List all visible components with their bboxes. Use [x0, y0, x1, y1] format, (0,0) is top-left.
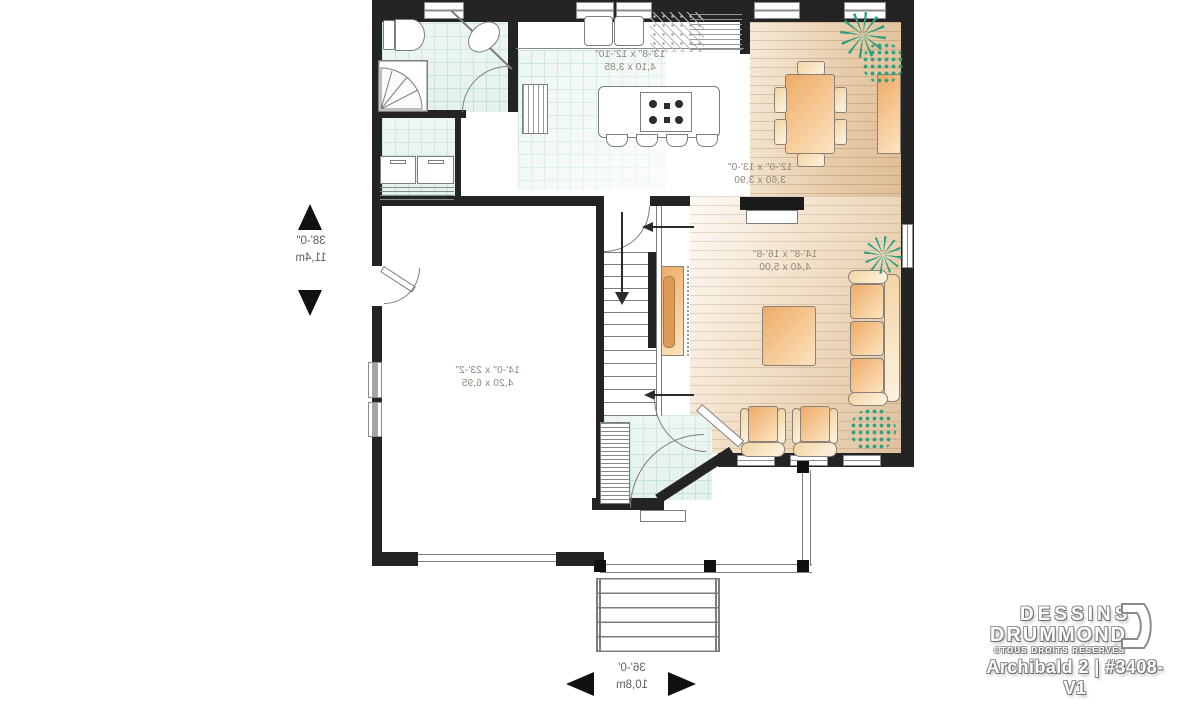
width-metric: 10,8m — [600, 677, 664, 694]
porch-post — [797, 560, 809, 572]
sofa-cushion — [850, 321, 884, 356]
width-dimension-label: 36'-0' 10,8m — [600, 660, 664, 693]
garage-size-imperial: 14'-0" x 23'-2" — [430, 364, 545, 377]
dimension-arrow-left-icon — [566, 672, 594, 696]
dryer — [417, 156, 454, 184]
plant-icon — [850, 408, 896, 452]
dining-chair — [797, 61, 825, 75]
dining-size-label: 12'-0" x 13'-0" 3,60 x 3,90 — [700, 161, 820, 187]
coffee-table — [762, 306, 816, 366]
stair-direction-line — [621, 212, 623, 294]
toilet-bowl — [395, 19, 425, 51]
porch-post — [594, 560, 606, 572]
armchair-back — [793, 442, 837, 457]
dining-chair — [774, 87, 787, 113]
sofa — [848, 270, 902, 406]
garage-door — [418, 554, 556, 562]
sofa-back — [884, 274, 900, 402]
sofa-cushion — [850, 284, 884, 319]
armchair-back — [741, 442, 785, 457]
dining-chair — [834, 87, 847, 113]
brand-rights: ©TOUS DROITS RÉSERVÉS — [994, 646, 1125, 655]
entry-closet — [600, 422, 630, 504]
mudroom-bench — [380, 187, 454, 203]
plant-icon — [864, 236, 902, 274]
depth-metric: 11,4m — [278, 250, 344, 267]
armchair-arm — [777, 408, 786, 444]
hearth-dotted-edge — [687, 266, 691, 356]
washer — [380, 156, 416, 184]
brand-d-mark-icon — [1116, 601, 1156, 651]
sideboard — [877, 74, 901, 154]
armchair — [740, 402, 786, 458]
sofa-armrest — [848, 392, 888, 406]
kitchen-size-label: 13'-8" x 12'-10" 4,10 x 3,85 — [565, 48, 695, 74]
entry-flow-line — [654, 394, 694, 396]
fireplace-hearth — [746, 210, 798, 224]
refrigerator — [522, 84, 548, 134]
living-window-bottom-3 — [843, 455, 881, 466]
porch-post — [797, 461, 809, 473]
plan-title: Archibald 2 | #3408-V1 — [983, 657, 1167, 699]
kitchen-sink-left — [584, 16, 613, 46]
entry-flow-line — [652, 226, 694, 228]
stair-treads-lower — [604, 350, 660, 416]
living-size-label: 14'-8" x 16'-8" 4,40 x 5,00 — [725, 248, 845, 274]
kitchen-counter-right — [690, 14, 742, 52]
burner — [675, 116, 683, 124]
bar-stool — [606, 134, 628, 147]
kitchen-size-metric: 4,10 x 3,85 — [565, 61, 695, 74]
garage-side-door-arc — [384, 268, 420, 304]
dimension-arrow-right-icon — [668, 672, 696, 696]
floor-plan-canvas: 13'-8" x 12'-10" 4,10 x 3,85 12'-0" x 13… — [0, 0, 1200, 711]
dining-table — [785, 74, 835, 154]
toilet-tank — [383, 20, 395, 50]
bar-stool — [666, 134, 688, 147]
burner — [649, 116, 657, 124]
cooktop-control — [664, 103, 670, 109]
brand-name-line1: DESSINS — [1020, 604, 1131, 626]
armchair-seat — [748, 406, 778, 442]
stair-divider-wall — [648, 252, 656, 348]
dining-chair — [774, 119, 787, 145]
stair-arrow-left-icon — [642, 222, 653, 232]
stair-arrow-down-icon — [615, 292, 629, 305]
washer-handle — [390, 160, 406, 164]
porch-steps — [596, 578, 720, 652]
wall-garage-bottom-left — [372, 552, 418, 566]
dryer-handle — [428, 160, 444, 164]
dining-chair — [834, 119, 847, 145]
burner — [649, 100, 657, 108]
living-size-imperial: 14'-8" x 16'-8" — [725, 248, 845, 261]
garage-size-label: 14'-0" x 23'-2" 4,20 x 6,95 — [430, 364, 545, 390]
living-size-metric: 4,40 x 5,00 — [725, 261, 845, 274]
plant-icon — [862, 42, 904, 84]
depth-dimension-label: 38'-0" 11,4m — [278, 233, 344, 266]
armchair-seat — [800, 406, 830, 442]
cabinet-inset — [663, 276, 675, 348]
kitchen-size-imperial: 13'-8" x 12'-10" — [565, 48, 695, 61]
kitchen-sink-right — [614, 16, 644, 46]
dining-size-imperial: 12'-0" x 13'-0" — [700, 161, 820, 174]
dimension-arrow-up-icon — [298, 204, 322, 230]
dining-window-left — [754, 2, 800, 19]
corner-shower — [378, 60, 428, 112]
bar-stool — [696, 134, 718, 147]
stair-railing — [656, 206, 662, 416]
porch-railing-vertical — [802, 470, 811, 566]
garage-size-metric: 4,20 x 6,95 — [430, 377, 545, 390]
porch-post — [704, 560, 716, 572]
wall-mid-stub — [650, 196, 690, 206]
garage-window-upper — [368, 362, 382, 398]
entry-step — [640, 510, 686, 522]
depth-imperial: 38'-0" — [278, 233, 344, 250]
wall-laundry-right — [455, 118, 461, 204]
cooktop — [640, 92, 692, 132]
armchair-arm — [829, 408, 838, 444]
bar-stool — [636, 134, 658, 147]
armchair — [792, 402, 838, 458]
burner — [675, 100, 683, 108]
living-window-right — [902, 224, 913, 268]
cooktop-control — [664, 117, 670, 123]
sofa-cushion — [850, 358, 884, 393]
width-imperial: 36'-0' — [600, 660, 664, 677]
brand-name-line2: DRUMMOND — [990, 624, 1127, 647]
dimension-arrow-down-icon — [298, 290, 322, 316]
dining-size-metric: 3,60 x 3,90 — [700, 174, 820, 187]
fireplace — [740, 197, 804, 210]
garage-window-lower — [368, 402, 382, 437]
